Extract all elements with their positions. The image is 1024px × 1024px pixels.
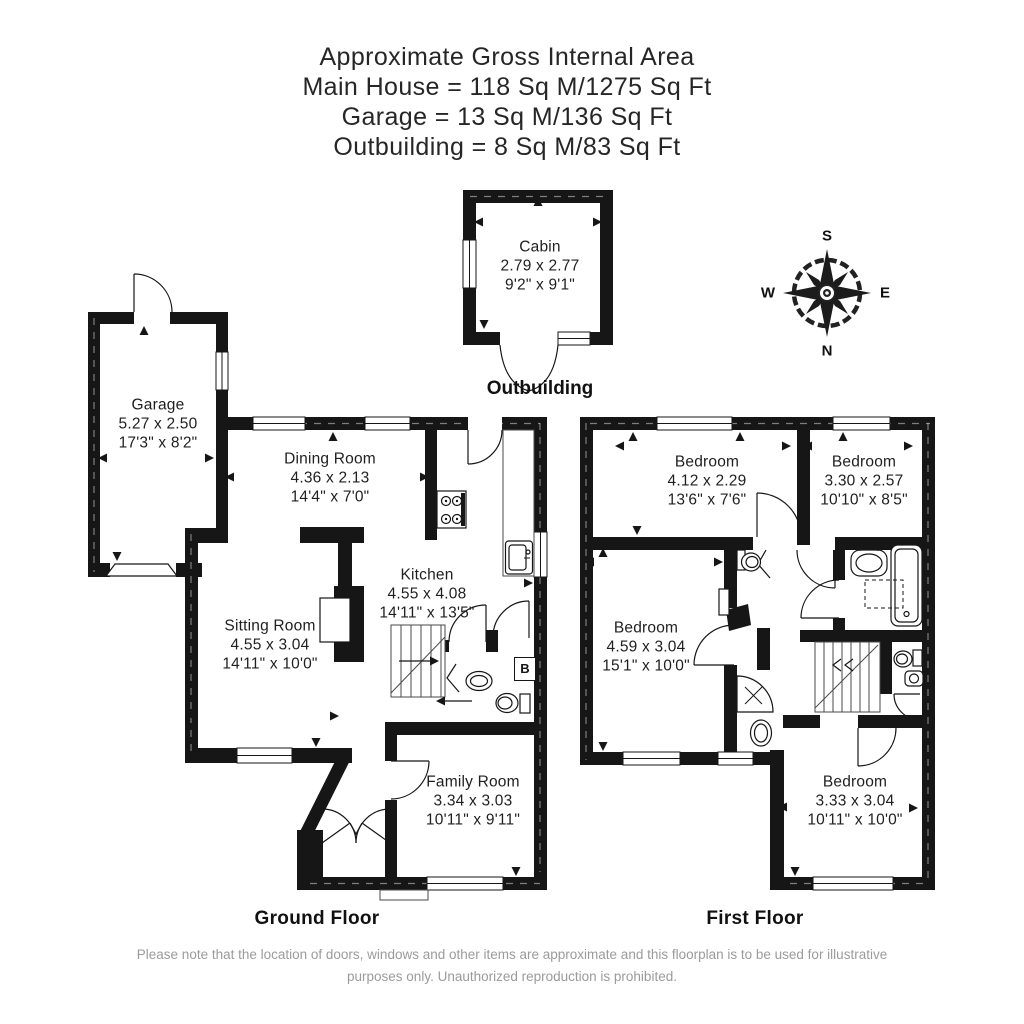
room-label-kitchen: Kitchen 4.55 x 4.08 14'11" x 13'5" [379, 566, 474, 623]
room-dims-imperial: 15'1" x 10'0" [602, 657, 690, 676]
outbuilding-label: Outbuilding [487, 378, 594, 400]
compass-east-label: E [880, 285, 890, 302]
room-dims-imperial: 10'11" x 10'0" [807, 811, 902, 830]
title-block: Approximate Gross Internal Area Main Hou… [0, 42, 1014, 162]
room-name: Garage [119, 396, 198, 415]
staircase-icon [391, 625, 445, 697]
kitchen-sink-icon [506, 541, 533, 574]
cloakroom-sink-icon [466, 672, 492, 691]
staircase-first-icon [815, 642, 880, 712]
room-name: Kitchen [379, 566, 474, 585]
disclaimer: Please note that the location of doors, … [0, 944, 1024, 988]
bathroom-sink-icon [851, 547, 887, 576]
room-name: Bedroom [820, 453, 908, 472]
compass-west-label: W [761, 285, 775, 302]
room-label-cabin: Cabin 2.79 x 2.77 9'2" x 9'1" [501, 238, 580, 295]
room-name: Dining Room [284, 450, 376, 469]
ground-floor-label: Ground Floor [255, 908, 380, 930]
room-dims-metric: 4.36 x 2.13 [284, 469, 376, 488]
room-name: Cabin [501, 238, 580, 257]
floorplan-page: Approximate Gross Internal Area Main Hou… [0, 0, 1024, 1024]
room-label-bedroom-2: Bedroom 3.30 x 2.57 10'10" x 8'5" [820, 453, 908, 510]
room-label-bedroom-3: Bedroom 4.59 x 3.04 15'1" x 10'0" [602, 619, 690, 676]
room-name: Family Room [426, 773, 520, 792]
room-dims-imperial: 13'6" x 7'6" [668, 491, 747, 510]
radiator-icon [719, 589, 729, 615]
wc-toilet-first-icon [894, 650, 922, 667]
room-name: Sitting Room [222, 617, 317, 636]
landing-toilet-icon [737, 550, 761, 571]
title-line-4: Outbuilding = 8 Sq M/83 Sq Ft [0, 132, 1014, 162]
compass-south-label: S [822, 228, 832, 245]
porch-step [380, 890, 428, 900]
room-label-bedroom-1: Bedroom 4.12 x 2.29 13'6" x 7'6" [668, 453, 747, 510]
room-dims-imperial: 14'11" x 13'5" [379, 604, 474, 623]
boiler-label: B [514, 657, 536, 681]
disclaimer-line-1: Please note that the location of doors, … [0, 944, 1024, 966]
room-dims-imperial: 14'4" x 7'0" [284, 488, 376, 507]
room-name: Bedroom [668, 453, 747, 472]
room-dims-metric: 3.33 x 3.04 [807, 792, 902, 811]
room-label-garage: Garage 5.27 x 2.50 17'3" x 8'2" [119, 396, 198, 453]
room-dims-metric: 4.12 x 2.29 [668, 472, 747, 491]
fireplace-icon [320, 598, 350, 642]
room-dims-imperial: 14'11" x 10'0" [222, 655, 317, 674]
wc-sink-first-icon [905, 671, 923, 686]
shower-icon [737, 676, 773, 712]
room-dims-metric: 2.79 x 2.77 [501, 257, 580, 276]
garage-door-icon [106, 564, 177, 576]
room-dims-imperial: 9'2" x 9'1" [501, 276, 580, 295]
room-label-family-room: Family Room 3.34 x 3.03 10'11" x 9'11" [426, 773, 520, 830]
room-label-dining-room: Dining Room 4.36 x 2.13 14'4" x 7'0" [284, 450, 376, 507]
title-line-1: Approximate Gross Internal Area [0, 42, 1014, 72]
entrance-arrow-icon [436, 697, 472, 706]
stove-icon [437, 491, 466, 528]
disclaimer-line-2: purposes only. Unauthorized reproduction… [0, 966, 1024, 988]
pedestal-sink-icon [751, 720, 772, 746]
room-name: Bedroom [602, 619, 690, 638]
first-floor-label: First Floor [706, 908, 803, 930]
room-dims-imperial: 17'3" x 8'2" [119, 434, 198, 453]
cloakroom-toilet-icon [496, 694, 530, 714]
room-dims-imperial: 10'10" x 8'5" [820, 491, 908, 510]
title-line-3: Garage = 13 Sq M/136 Sq Ft [0, 102, 1014, 132]
bathtub-icon [891, 545, 922, 626]
room-dims-metric: 4.55 x 3.04 [222, 636, 317, 655]
room-label-sitting-room: Sitting Room 4.55 x 3.04 14'11" x 10'0" [222, 617, 317, 674]
room-dims-metric: 3.30 x 2.57 [820, 472, 908, 491]
room-name: Bedroom [807, 773, 902, 792]
room-dims-metric: 3.34 x 3.03 [426, 792, 520, 811]
room-dims-imperial: 10'11" x 9'11" [426, 811, 520, 830]
room-dims-metric: 4.55 x 4.08 [379, 585, 474, 604]
room-label-bedroom-4: Bedroom 3.33 x 3.04 10'11" x 10'0" [807, 773, 902, 830]
compass-north-label: N [822, 343, 833, 360]
compass-rose-icon [783, 249, 871, 337]
room-dims-metric: 4.59 x 3.04 [602, 638, 690, 657]
title-line-2: Main House = 118 Sq M/1275 Sq Ft [0, 72, 1014, 102]
room-dims-metric: 5.27 x 2.50 [119, 415, 198, 434]
